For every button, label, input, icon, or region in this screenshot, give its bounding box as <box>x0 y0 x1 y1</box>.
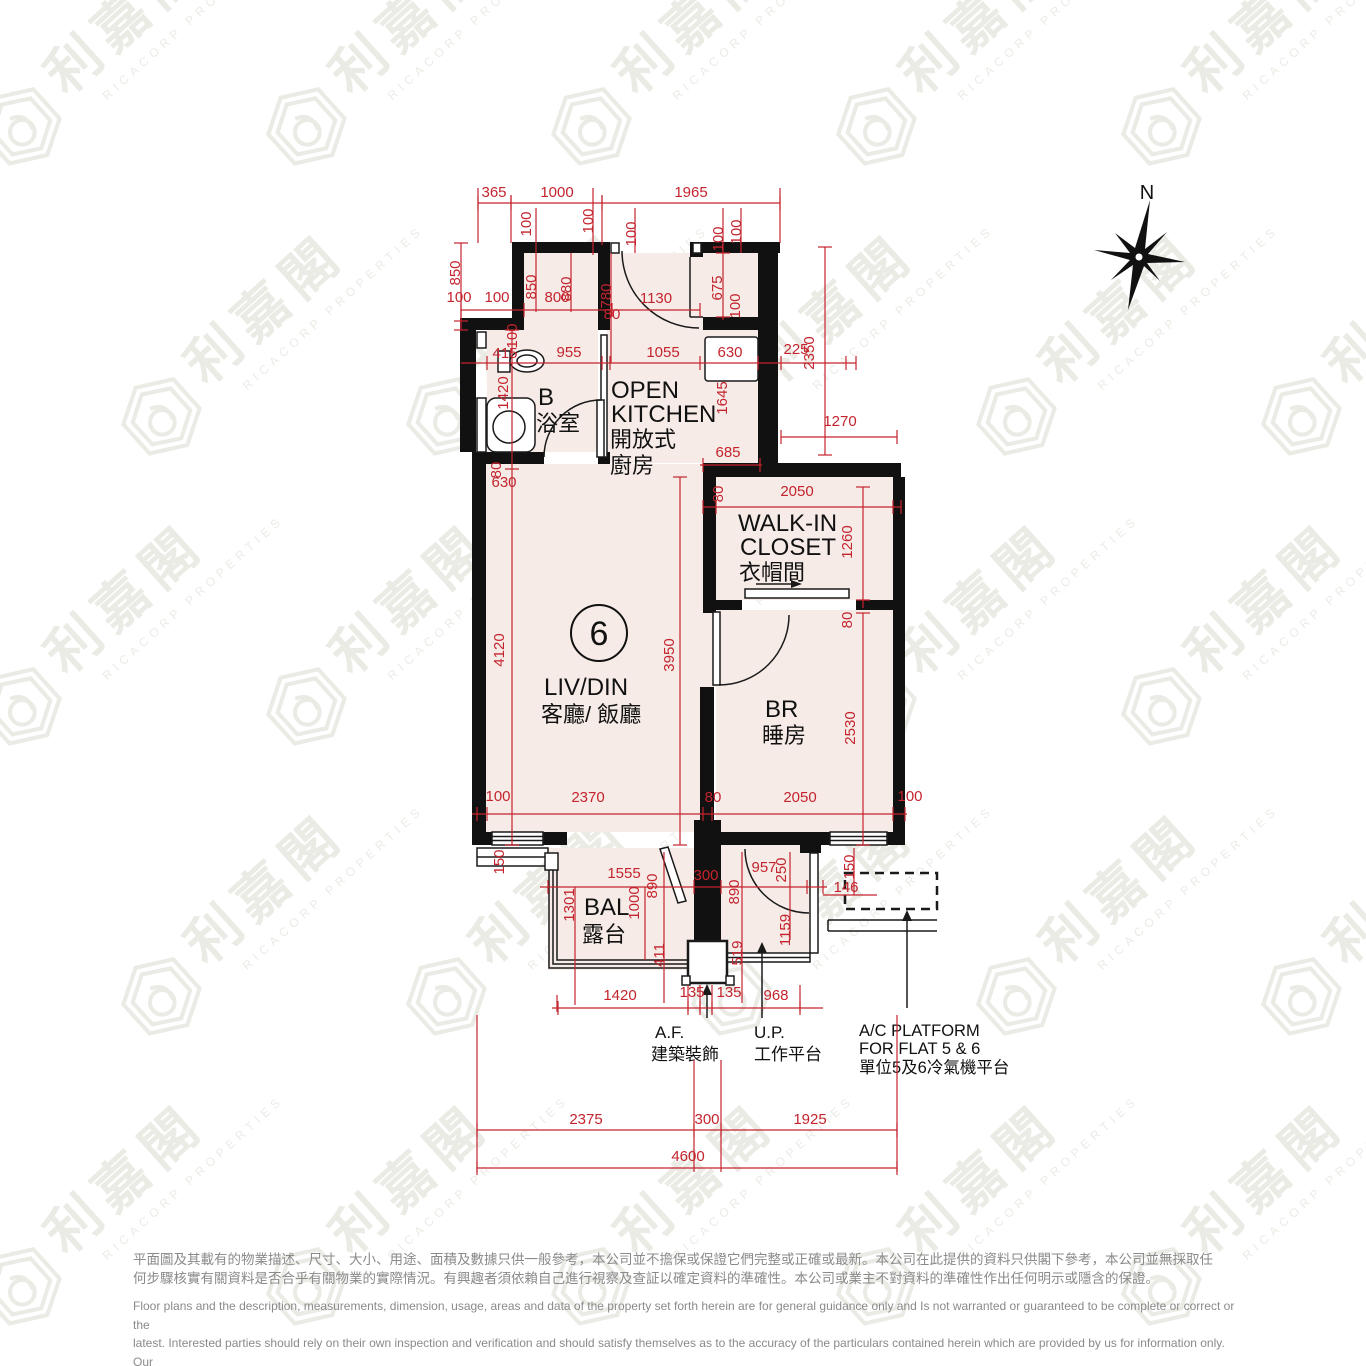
service-shaft <box>477 398 486 452</box>
bal-label-zh: 露台 <box>582 922 626 947</box>
br-door-leaf <box>713 612 720 685</box>
dimension-value: 1555 <box>607 865 640 882</box>
up-label-zh: 工作平台 <box>754 1045 822 1064</box>
dimension-value: 1420 <box>495 376 512 409</box>
service-shaft <box>477 332 486 348</box>
disclaimer: 平面圖及其載有的物業描述、尺寸、大小、用途、面積及數據只供一般參考，本公司並不擔… <box>133 1250 1237 1366</box>
dimension-value: 1420 <box>603 987 636 1004</box>
dimension-value: 1270 <box>823 413 856 430</box>
kitchen-label: KITCHEN <box>611 401 716 428</box>
dimension-value: 1000 <box>626 886 643 919</box>
dimension-value: 365 <box>481 184 506 201</box>
compass-north-label: N <box>1140 182 1154 204</box>
dimension-value: 2050 <box>780 483 813 500</box>
dimension-value: 415 <box>492 345 517 362</box>
dimension-value: 146 <box>833 879 858 896</box>
dimension-value: 2050 <box>783 789 816 806</box>
dimension-value: 780 <box>598 283 615 308</box>
dimension-value: 685 <box>715 444 740 461</box>
disclaimer-line: 平面圖及其載有的物業描述、尺寸、大小、用途、面積及數據只供一般參考，本公司並不擔… <box>133 1250 1237 1269</box>
unit-number: 6 <box>590 615 609 653</box>
dimension-value: 630 <box>717 344 742 361</box>
dimension-value: 135 <box>679 984 704 1001</box>
dimension-value: 1055 <box>646 344 679 361</box>
dimension-value: 300 <box>693 867 718 884</box>
floor-plan-page: 利嘉閣RICACORP PROPERTIES利嘉閣RICACORP PROPER… <box>0 0 1366 1366</box>
disclaimer-zh: 平面圖及其載有的物業描述、尺寸、大小、用途、面積及數據只供一般參考，本公司並不擔… <box>133 1250 1237 1288</box>
dimension-value: 850 <box>523 274 540 299</box>
north-compass: N <box>1094 182 1185 310</box>
dimension-value: 100 <box>710 226 727 251</box>
dimension-value: 100 <box>485 788 510 805</box>
af-feature <box>688 941 727 983</box>
dimension-value: 1260 <box>839 525 856 558</box>
closet-label: CLOSET <box>740 534 836 561</box>
dimension-value: 675 <box>709 275 726 300</box>
ac-platform-outline <box>845 873 937 909</box>
disclaimer-line: Floor plans and the description, measure… <box>133 1297 1237 1334</box>
ac-platform-wall <box>828 920 937 931</box>
dimension-value: 1301 <box>561 888 578 921</box>
dimension-value: 2350 <box>801 336 818 369</box>
dimension-value: 100 <box>484 289 509 306</box>
dimension-value: 250 <box>773 857 790 882</box>
railing-post <box>545 853 558 870</box>
dimension-value: 1965 <box>674 184 707 201</box>
dimension-value: 100 <box>728 219 745 244</box>
dimension-value: 955 <box>556 344 581 361</box>
floor-plan-drawing: N B 浴室 OPEN KITCHEN 開放式 廚房 WALK-IN CLOSE… <box>0 0 1366 1366</box>
bath-label-zh: 浴室 <box>536 411 580 436</box>
dimension-value: 80 <box>710 486 727 503</box>
dimension-value: 100 <box>580 208 597 233</box>
disclaimer-line: latest. Interested parties should rely o… <box>133 1334 1237 1366</box>
kitchen-label-zh: 廚房 <box>610 453 654 478</box>
window <box>830 832 887 845</box>
closet-label: WALK-IN <box>738 510 837 537</box>
dimension-value: 968 <box>763 987 788 1004</box>
dimension-value: 100 <box>623 221 640 246</box>
ac-platform-label: A/C PLATFORM <box>859 1022 980 1040</box>
livdin-label-en: LIV/DIN <box>544 674 628 701</box>
up-label-en: U.P. <box>754 1023 785 1042</box>
disclaimer-line: 何步驟核實有關資料是否合乎有關物業的實際情況。有興趣者須依賴自己進行視察及查証以… <box>133 1269 1237 1288</box>
window <box>492 832 543 845</box>
dimension-value: 4600 <box>671 1148 704 1165</box>
dimension-value: 135 <box>716 984 741 1001</box>
af-label-zh: 建築裝飾 <box>651 1045 719 1064</box>
dimension-value: 1130 <box>640 290 672 307</box>
dimension-value: 300 <box>694 1111 719 1128</box>
dimension-value: 2530 <box>842 711 859 744</box>
dimension-value: 1925 <box>793 1111 826 1128</box>
bal-label-en: BAL <box>584 894 629 921</box>
dimension-value: 630 <box>491 474 516 491</box>
br-label-en: BR <box>765 696 798 723</box>
kitchen-label-zh: 開放式 <box>610 427 676 452</box>
dimension-value: 1159 <box>777 914 794 946</box>
up-side-wall <box>810 853 818 953</box>
dimension-value: 150 <box>491 849 508 874</box>
dimension-value: 411 <box>651 943 668 967</box>
dimension-value: 1000 <box>540 184 573 201</box>
dimension-value: 880 <box>558 276 575 301</box>
dimension-value: 890 <box>726 879 743 904</box>
bath-label-en: B <box>538 384 554 411</box>
disclaimer-en: Floor plans and the description, measure… <box>133 1297 1237 1366</box>
closet-label-zh: 衣帽間 <box>739 560 805 585</box>
livdin-label-zh: 客廳/ 飯廳 <box>541 702 641 727</box>
dimension-value: 80 <box>839 612 856 629</box>
dimension-value: 2370 <box>571 789 604 806</box>
dimension-value: 4120 <box>491 633 508 666</box>
dimension-value: 100 <box>518 211 535 236</box>
kitchen-label: OPEN <box>611 377 679 404</box>
br-label-zh: 睡房 <box>762 723 806 748</box>
dimension-value: 1645 <box>714 381 731 414</box>
dimension-value: 519 <box>729 940 746 965</box>
dimension-value: 3950 <box>661 638 678 671</box>
dimension-value: 100 <box>727 293 744 318</box>
ac-platform-label-zh: 單位5及6冷氣機平台 <box>859 1058 1009 1077</box>
dimension-value: 100 <box>897 788 922 805</box>
dimension-value: 100 <box>446 289 471 306</box>
ac-platform-label: FOR FLAT 5 & 6 <box>859 1040 980 1058</box>
dimension-value: 2375 <box>569 1111 602 1128</box>
bath-door-leaf <box>597 400 604 457</box>
af-label-en: A.F. <box>655 1023 684 1042</box>
dimension-value: 80 <box>705 789 722 806</box>
dimension-value: 850 <box>447 260 464 285</box>
closet-sliding-door <box>745 589 849 598</box>
dimension-value: 80 <box>604 306 621 323</box>
dimension-value: 890 <box>644 873 661 898</box>
dimension-value: 150 <box>841 854 858 879</box>
